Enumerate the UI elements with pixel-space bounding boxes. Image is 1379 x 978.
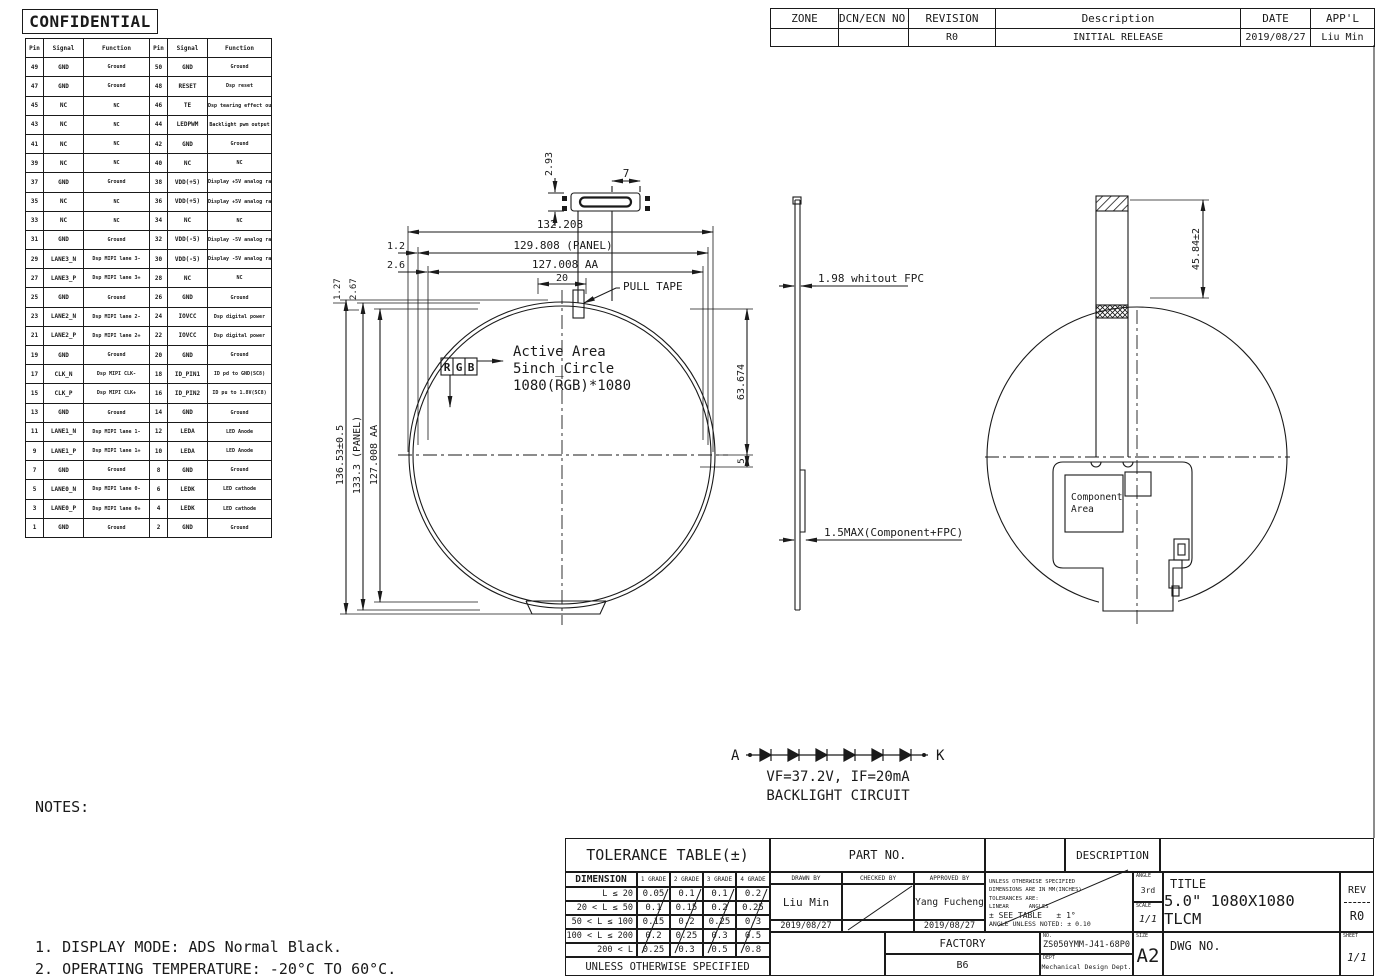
tolerance-table-title: TOLERANCE TABLE(±) — [565, 838, 770, 872]
part-no-label: PART NO. — [770, 838, 985, 872]
pin-table-row: 33 NC NC 34 NC NC — [26, 211, 272, 230]
pin-signal: VDD(-5) — [168, 230, 208, 249]
tolerance-value: 0.15 — [670, 901, 703, 915]
pin-number: 27 — [26, 269, 44, 288]
pin-function: Dsp MIPI lane 2+ — [84, 326, 150, 345]
pin-signal: GND — [44, 461, 84, 480]
pin-number: 17 — [26, 365, 44, 384]
pin-table-header: Function — [84, 39, 150, 58]
pin-table-header: Function — [208, 39, 272, 58]
pin-number: 48 — [150, 77, 168, 96]
spec-note-line: ± SEE TABLE ± 1° — [989, 912, 1076, 921]
pin-function: Ground — [84, 230, 150, 249]
pin-signal: LANE3_N — [44, 250, 84, 269]
pin-table-header-row: PinSignalFunctionPinSignalFunction — [26, 39, 272, 58]
tolerance-dim-range: 200 < L — [565, 943, 637, 957]
revision-header: DATE — [1241, 9, 1311, 29]
pin-number: 26 — [150, 288, 168, 307]
pin-number: 14 — [150, 403, 168, 422]
pin-signal: GND — [168, 58, 208, 77]
tolerance-value: 0.5 — [736, 929, 770, 943]
pin-function: NC — [208, 269, 272, 288]
description-value — [1160, 838, 1374, 872]
approved-by-label: APPROVED BY — [914, 872, 985, 884]
pin-signal: GND — [44, 230, 84, 249]
pin-function: Dsp MIPI lane 2- — [84, 307, 150, 326]
dim-2-93: 2.93 — [544, 152, 555, 176]
pin-number: 12 — [150, 422, 168, 441]
pin-number: 8 — [150, 461, 168, 480]
pin-table-row: 15 CLK_P Dsp MIPI CLK+ 16 ID_PIN2 ID pu … — [26, 384, 272, 403]
tolerance-footer: UNLESS OTHERWISE SPECIFIED — [565, 957, 770, 976]
component-thickness-label: 1.5MAX(Component+FPC) — [824, 526, 963, 539]
pin-signal: LEDPWM — [168, 115, 208, 134]
pin-function: Ground — [208, 518, 272, 537]
factory-label: FACTORY — [885, 932, 1040, 954]
pin-number: 46 — [150, 96, 168, 115]
tolerance-dim-range: 20 < L ≤ 50 — [565, 901, 637, 915]
centerlines — [398, 290, 728, 625]
revision-header-row: ZONEDCN/ECN NO.REVISIONDescriptionDATEAP… — [771, 9, 1375, 29]
title-block: TOLERANCE TABLE(±) DIMENSION 1 GRADE 2 G… — [565, 838, 1374, 976]
pin-function: Ground — [208, 403, 272, 422]
backlight-circuit — [746, 749, 928, 761]
pin-function: Display +5V analog rail — [208, 192, 272, 211]
pin-signal: IOVCC — [168, 326, 208, 345]
pin-function: Dsp digital power — [208, 307, 272, 326]
pin-number: 32 — [150, 230, 168, 249]
cathode-label: K — [936, 748, 945, 764]
pin-number: 18 — [150, 365, 168, 384]
pin-function: Dsp MIPI lane 3+ — [84, 269, 150, 288]
pin-signal: GND — [44, 518, 84, 537]
pin-number: 38 — [150, 173, 168, 192]
pin-function: Dsp tearing effect out — [208, 96, 272, 115]
tolerance-header-grade4: 4 GRADE — [736, 872, 770, 887]
checked-by-name — [842, 884, 914, 920]
size-value: A2 — [1137, 945, 1160, 967]
revision-header: DCN/ECN NO. — [839, 9, 909, 29]
spec-note-line: TOLERANCES ARE: — [989, 895, 1039, 904]
pin-function: ID pd to GND(SC8) — [208, 365, 272, 384]
spec-note-line: ANGLE UNLESS NOTED: ± 0.10 — [989, 920, 1091, 929]
dwg-no-label: DWG NO. — [1170, 939, 1221, 953]
tolerance-value: 0.25 — [637, 943, 670, 957]
pin-table-row: 27 LANE3_P Dsp MIPI lane 3+ 28 NC NC — [26, 269, 272, 288]
pin-number: 30 — [150, 250, 168, 269]
pin-function: LED cathode — [208, 480, 272, 499]
front-view-labels: 7 2.93 132.208 1.2 129.808 (PANEL) 2.6 1… — [333, 152, 747, 494]
no-label: NO. — [1043, 934, 1052, 939]
pin-table-row: 41 NC NC 42 GND Ground — [26, 134, 272, 153]
note-item: 1. DISPLAY MODE: ADS Normal Black. — [35, 936, 414, 958]
pin-table: PinSignalFunctionPinSignalFunction 49 GN… — [25, 38, 272, 538]
tolerance-row: 200 < L 0.25 0.3 0.5 0.8 — [565, 943, 770, 957]
checked-by-label: CHECKED BY — [842, 872, 914, 884]
pin-table-row: 49 GND Ground 50 GND Ground — [26, 58, 272, 77]
pin-number: 49 — [26, 58, 44, 77]
active-area-line3: 1080(RGB)*1080 — [513, 378, 631, 394]
tolerance-value: 0.1 — [703, 887, 736, 901]
size-label: SIZE — [1136, 934, 1148, 939]
pin-number: 43 — [26, 115, 44, 134]
pin-table-row: 11 LANE1_N Dsp MIPI lane 1- 12 LEDA LED … — [26, 422, 272, 441]
checked-date — [842, 920, 914, 932]
pin-number: 44 — [150, 115, 168, 134]
pin-signal: NC — [44, 115, 84, 134]
pin-function: Dsp digital power — [208, 326, 272, 345]
dept-value: Mechanical Design Dept. — [1041, 963, 1131, 971]
pin-number: 21 — [26, 326, 44, 345]
rev-cell: REV R0 — [1340, 872, 1374, 932]
pin-number: 11 — [26, 422, 44, 441]
tolerance-value: 0.3 — [670, 943, 703, 957]
dept-cell: DEPT Mechanical Design Dept. — [1040, 954, 1133, 976]
pin-table-row: 21 LANE2_P Dsp MIPI lane 2+ 22 IOVCC Dsp… — [26, 326, 272, 345]
pin-function: ID pu to 1.8V(SC8) — [208, 384, 272, 403]
active-area-line1: Active Area — [513, 344, 606, 360]
tolerance-row: 20 < L ≤ 50 0.1 0.15 0.2 0.25 — [565, 901, 770, 915]
rear-view — [985, 196, 1290, 628]
pin-number: 42 — [150, 134, 168, 153]
tolerance-value: 0.25 — [736, 901, 770, 915]
pin-number: 47 — [26, 77, 44, 96]
pin-table-row: 25 GND Ground 26 GND Ground — [26, 288, 272, 307]
tolerance-header-grade1: 1 GRADE — [637, 872, 670, 887]
pin-signal: LANE2_P — [44, 326, 84, 345]
drawn-by-label: DRAWN BY — [770, 872, 842, 884]
revision-header: Description — [996, 9, 1241, 29]
pin-function: Dsp MIPI lane 3- — [84, 250, 150, 269]
pin-number: 35 — [26, 192, 44, 211]
pin-signal: GND — [168, 461, 208, 480]
pin-function: Display +5V analog rail — [208, 173, 272, 192]
pin-signal: LEDA — [168, 422, 208, 441]
pin-number: 6 — [150, 480, 168, 499]
pin-table-header: Pin — [150, 39, 168, 58]
pin-signal: LEDK — [168, 499, 208, 518]
pull-tape-label: PULL TAPE — [623, 280, 683, 293]
revision-row: R0INITIAL RELEASE2019/08/27Liu Min — [771, 29, 1375, 47]
pin-function: NC — [84, 192, 150, 211]
angle-value: 3rd — [1141, 886, 1155, 895]
dim-7: 7 — [623, 167, 630, 180]
tolerance-dim-range: 50 < L ≤ 100 — [565, 915, 637, 929]
pin-function: LED Anode — [208, 422, 272, 441]
pin-signal: GND — [44, 58, 84, 77]
dim-panel-h: 133.3 (PANEL) — [352, 416, 363, 494]
tolerance-value: 0.25 — [703, 915, 736, 929]
revision-header: REVISION — [909, 9, 996, 29]
spec-note-line: DIMENSIONS ARE IN MM(INCHES) — [989, 886, 1082, 895]
notes-section: NOTES: 1. DISPLAY MODE: ADS Normal Black… — [35, 752, 414, 978]
tolerance-value: 0.2 — [703, 901, 736, 915]
dim-63-674: 63.674 — [736, 364, 747, 400]
dept-label: DEPT — [1043, 956, 1055, 961]
active-area-line2: 5inch_Circle — [513, 361, 614, 377]
pin-number: 31 — [26, 230, 44, 249]
pin-table-row: 17 CLK_N Dsp MIPI CLK- 18 ID_PIN1 ID pd … — [26, 365, 272, 384]
tolerance-value: 0.3 — [703, 929, 736, 943]
pin-signal: LANE2_N — [44, 307, 84, 326]
pin-signal: CLK_N — [44, 365, 84, 384]
part-no-value — [985, 838, 1065, 872]
pin-number: 45 — [26, 96, 44, 115]
pin-table-row: 35 NC NC 36 VDD(+5) Display +5V analog r… — [26, 192, 272, 211]
pin-table-row: 45 NC NC 46 TE Dsp tearing effect out — [26, 96, 272, 115]
tolerance-value: 0.2 — [637, 929, 670, 943]
title-label: TITLE — [1170, 877, 1206, 891]
backlight-title: BACKLIGHT CIRCUIT — [766, 788, 910, 804]
note-item: 2. OPERATING TEMPERATURE: -20°C TO 60°C. — [35, 958, 414, 978]
drawn-date: 2019/08/27 — [770, 920, 842, 932]
pin-table-row: 37 GND Ground 38 VDD(+5) Display +5V ana… — [26, 173, 272, 192]
pin-signal: NC — [44, 96, 84, 115]
drawing-title: 5.0" 1080X1080 TLCM — [1164, 892, 1339, 928]
pin-signal: RESET — [168, 77, 208, 96]
description-label: DESCRIPTION — [1065, 838, 1160, 872]
dim-tail: 45.84±2 — [1191, 228, 1202, 270]
pin-function: Dsp MIPI lane 1- — [84, 422, 150, 441]
pin-function: NC — [208, 154, 272, 173]
revision-header: APP'L — [1311, 9, 1375, 29]
tolerance-value: 0.15 — [637, 915, 670, 929]
scale-label: SCALE — [1136, 904, 1151, 909]
component-area-label2: Area — [1071, 504, 1094, 515]
revision-cell — [771, 29, 839, 47]
rgb-g: G — [456, 361, 463, 374]
dim-overall-h: 136.53±0.5 — [335, 425, 346, 485]
pin-number: 9 — [26, 441, 44, 460]
pin-number: 36 — [150, 192, 168, 211]
dim-overall-w: 132.208 — [537, 218, 583, 231]
pin-function: Backlight pwm output — [208, 115, 272, 134]
tolerance-value: 0.1 — [637, 901, 670, 915]
pin-number: 25 — [26, 288, 44, 307]
factory-value: B6 — [885, 954, 1040, 976]
revision-header: ZONE — [771, 9, 839, 29]
title-cell: TITLE 5.0" 1080X1080 TLCM — [1163, 872, 1340, 932]
pin-signal: NC — [44, 134, 84, 153]
pin-function: Dsp MIPI lane 0+ — [84, 499, 150, 518]
component-area-label1: Component — [1071, 492, 1122, 503]
pin-number: 2 — [150, 518, 168, 537]
pin-number: 50 — [150, 58, 168, 77]
empty-cell — [770, 932, 885, 976]
pin-function: NC — [84, 115, 150, 134]
adhesive-band — [1096, 305, 1128, 318]
tolerance-row: 100 < L ≤ 200 0.2 0.25 0.3 0.5 — [565, 929, 770, 943]
pin-signal: LANE1_N — [44, 422, 84, 441]
dim-5: 5 — [737, 458, 747, 463]
tolerance-value: 0.5 — [703, 943, 736, 957]
pin-function: NC — [208, 211, 272, 230]
pin-function: Dsp reset — [208, 77, 272, 96]
rev-label: REV — [1348, 885, 1366, 896]
sheet-cell: SHEET 1/1 — [1340, 932, 1374, 976]
tolerance-value: 0.2 — [736, 887, 770, 901]
sheet-value: 1/1 — [1347, 951, 1367, 964]
rgb-r: R — [444, 361, 451, 374]
pin-number: 37 — [26, 173, 44, 192]
pin-signal: LANE0_N — [44, 480, 84, 499]
pin-signal: GND — [168, 403, 208, 422]
drawing-sheet: 7 2.93 132.208 1.2 129.808 (PANEL) 2.6 1… — [0, 0, 1379, 978]
dim-20: 20 — [556, 273, 568, 284]
approved-by-name: Yang Fucheng — [914, 884, 985, 920]
pin-function: Ground — [208, 134, 272, 153]
pin-signal: GND — [44, 173, 84, 192]
side-view-labels: 1.98 whitout FPC 1.5MAX(Component+FPC) — [818, 272, 963, 539]
pin-signal: NC — [168, 269, 208, 288]
pin-function: Display -5V analog rail — [208, 230, 272, 249]
pin-function: Ground — [84, 58, 150, 77]
pin-function: Ground — [208, 288, 272, 307]
pin-function: Ground — [84, 518, 150, 537]
dim-1-2: 1.2 — [387, 241, 405, 252]
tolerance-header-grade3: 3 GRADE — [703, 872, 736, 887]
pin-function: Dsp MIPI CLK- — [84, 365, 150, 384]
pin-number: 10 — [150, 441, 168, 460]
pin-number: 24 — [150, 307, 168, 326]
rgb-b: B — [468, 361, 475, 374]
pin-function: LED Anode — [208, 441, 272, 460]
pin-number: 29 — [26, 250, 44, 269]
pin-number: 23 — [26, 307, 44, 326]
pin-table-row: 43 NC NC 44 LEDPWM Backlight pwm output — [26, 115, 272, 134]
confidential-stamp: CONFIDENTIAL — [22, 9, 158, 34]
pin-signal: ID_PIN1 — [168, 365, 208, 384]
notes-list: 1. DISPLAY MODE: ADS Normal Black.2. OPE… — [35, 870, 414, 978]
pin-number: 4 — [150, 499, 168, 518]
pin-signal: GND — [168, 346, 208, 365]
rear-connector — [1096, 196, 1128, 211]
revision-cell: R0 — [909, 29, 996, 47]
pin-table-row: 7 GND Ground 8 GND Ground — [26, 461, 272, 480]
tolerance-rows: L ≤ 20 0.05 0.1 0.1 0.2 20 < L ≤ 50 0.1 … — [565, 887, 770, 957]
pin-function: NC — [84, 134, 150, 153]
tolerance-value: 0.25 — [670, 929, 703, 943]
pin-function: Ground — [84, 173, 150, 192]
tolerance-value: 0.2 — [670, 915, 703, 929]
scale-value: 1/1 — [1139, 914, 1157, 925]
rev-value: R0 — [1350, 909, 1364, 923]
pin-function: LED cathode — [208, 499, 272, 518]
pin-table-row: 13 GND Ground 14 GND Ground — [26, 403, 272, 422]
pin-table-header: Signal — [44, 39, 84, 58]
tolerance-row: L ≤ 20 0.05 0.1 0.1 0.2 — [565, 887, 770, 901]
pin-function: NC — [84, 154, 150, 173]
drawing-no-cell: NO. ZS050YMM-J41-68P0 — [1040, 932, 1133, 954]
approved-date: 2019/08/27 — [914, 920, 985, 932]
pin-signal: LEDK — [168, 480, 208, 499]
pin-table-row: 39 NC NC 40 NC NC — [26, 154, 272, 173]
tolerance-value: 0.1 — [670, 887, 703, 901]
pin-table-row: 19 GND Ground 20 GND Ground — [26, 346, 272, 365]
tolerance-header-dimension: DIMENSION — [565, 872, 637, 887]
drawing-no: ZS050YMM-J41-68P0 — [1043, 940, 1130, 950]
dwg-no-cell: DWG NO. — [1163, 932, 1340, 976]
pin-table-row: 31 GND Ground 32 VDD(-5) Display -5V ana… — [26, 230, 272, 249]
pin-signal: IOVCC — [168, 307, 208, 326]
pull-tape-leader — [584, 288, 620, 303]
dim-2-67: 2.67 — [349, 278, 359, 300]
pin-signal: NC — [44, 192, 84, 211]
pin-table-body: 49 GND Ground 50 GND Ground 47 GND Groun… — [26, 58, 272, 538]
size-cell: SIZE A2 — [1133, 932, 1163, 976]
pin-function: Dsp MIPI lane 0- — [84, 480, 150, 499]
pin-table-row: 3 LANE0_P Dsp MIPI lane 0+ 4 LEDK LED ca… — [26, 499, 272, 518]
pin-function: Ground — [208, 346, 272, 365]
pin-table-row: 1 GND Ground 2 GND Ground — [26, 518, 272, 537]
side-view — [779, 197, 962, 610]
angle-cell: ANGLE 3rd — [1133, 872, 1163, 902]
pin-number: 28 — [150, 269, 168, 288]
spec-notes: UNLESS OTHERWISE SPECIFIED DIMENSIONS AR… — [985, 872, 1133, 932]
pin-number: 19 — [26, 346, 44, 365]
anode-label: A — [731, 748, 740, 764]
pin-signal: NC — [44, 154, 84, 173]
revision-table: ZONEDCN/ECN NO.REVISIONDescriptionDATEAP… — [770, 8, 1375, 47]
tolerance-dim-range: L ≤ 20 — [565, 887, 637, 901]
pin-signal: VDD(-5) — [168, 250, 208, 269]
pin-function: Ground — [84, 461, 150, 480]
tolerance-value: 0.3 — [736, 915, 770, 929]
pin-table-row: 23 LANE2_N Dsp MIPI lane 2- 24 IOVCC Dsp… — [26, 307, 272, 326]
pin-function: Display -5V analog rail — [208, 250, 272, 269]
revision-cell — [839, 29, 909, 47]
pin-function: Dsp MIPI lane 1+ — [84, 441, 150, 460]
dim-aa-h: 127.008 AA — [369, 425, 380, 485]
dim-aa-w: 127.008 AA — [532, 258, 599, 271]
pin-number: 33 — [26, 211, 44, 230]
pin-signal: NC — [168, 154, 208, 173]
pin-number: 39 — [26, 154, 44, 173]
pin-number: 1 — [26, 518, 44, 537]
pin-signal: GND — [44, 346, 84, 365]
revision-cell: Liu Min — [1311, 29, 1375, 47]
pin-function: NC — [84, 211, 150, 230]
pin-function: Ground — [84, 346, 150, 365]
pin-function: NC — [84, 96, 150, 115]
pin-signal: GND — [44, 77, 84, 96]
notes-title: NOTES: — [35, 796, 414, 818]
revision-cell: 2019/08/27 — [1241, 29, 1311, 47]
pin-signal: GND — [168, 134, 208, 153]
sheet-label: SHEET — [1343, 934, 1358, 939]
pin-table-row: 29 LANE3_N Dsp MIPI lane 3- 30 VDD(-5) D… — [26, 250, 272, 269]
pin-table-row: 47 GND Ground 48 RESET Dsp reset — [26, 77, 272, 96]
pin-function: Dsp MIPI CLK+ — [84, 384, 150, 403]
pin-signal: LANE0_P — [44, 499, 84, 518]
pin-signal: VDD(+5) — [168, 192, 208, 211]
tolerance-value: 0.8 — [736, 943, 770, 957]
pin-signal: GND — [44, 403, 84, 422]
thickness-label: 1.98 whitout FPC — [818, 272, 924, 285]
tolerance-dim-range: 100 < L ≤ 200 — [565, 929, 637, 943]
pin-function: Ground — [84, 403, 150, 422]
pin-signal: LANE3_P — [44, 269, 84, 288]
tolerance-header-grade2: 2 GRADE — [670, 872, 703, 887]
pin-table-row: 9 LANE1_P Dsp MIPI lane 1+ 10 LEDA LED A… — [26, 441, 272, 460]
pin-function: Ground — [84, 77, 150, 96]
scale-cell: SCALE 1/1 — [1133, 902, 1163, 932]
pin-signal: NC — [168, 211, 208, 230]
pin-signal: GND — [168, 288, 208, 307]
pin-number: 5 — [26, 480, 44, 499]
pin-signal: NC — [44, 211, 84, 230]
dim-panel-w: 129.808 (PANEL) — [513, 239, 612, 252]
